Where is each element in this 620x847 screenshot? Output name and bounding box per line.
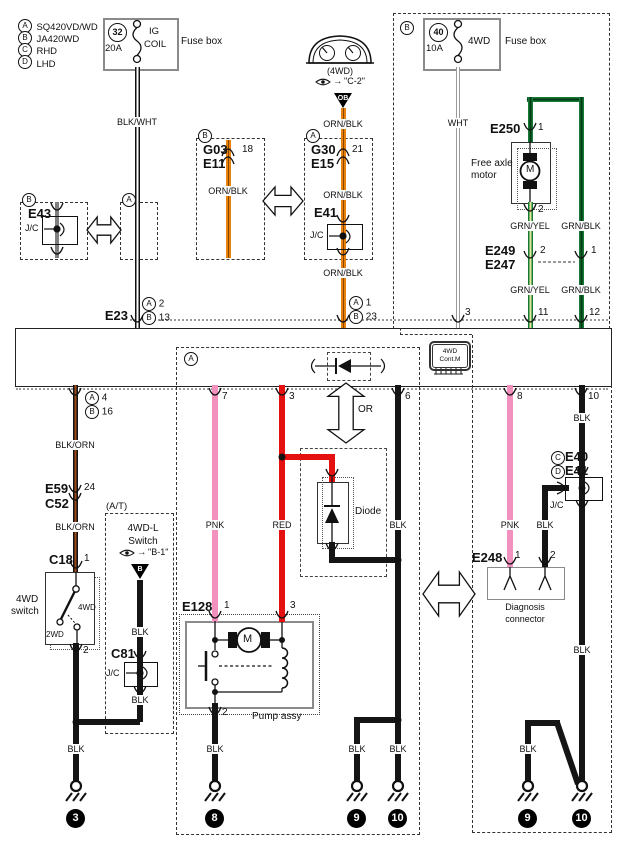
awdl-label-l2: Switch bbox=[127, 536, 158, 547]
wire-label: RED bbox=[271, 520, 292, 530]
awd-switch-pos-on: 4WD bbox=[78, 603, 96, 612]
wire-label: ORN/BLK bbox=[207, 186, 249, 196]
ground-icon-10a bbox=[388, 781, 408, 801]
connector-e249-l2: E247 bbox=[485, 257, 515, 272]
fuse-right-number: 40 bbox=[429, 23, 448, 42]
awd-switch-label-l1: 4WD bbox=[16, 594, 38, 605]
wire-label: BLK bbox=[518, 744, 537, 754]
ground-badge-10b: 10 bbox=[572, 809, 591, 828]
variant-arrow-e43 bbox=[87, 217, 121, 243]
connector-g03-l2: E11 bbox=[203, 156, 225, 171]
instrument-cluster-icon bbox=[306, 36, 374, 63]
mark-e43-b: B bbox=[22, 193, 36, 207]
grnblk-pin12: 12 bbox=[589, 307, 600, 318]
variant-arrow-g03-g30 bbox=[263, 187, 303, 215]
fuse-icon-right bbox=[454, 21, 462, 63]
e23-pin-b: B 13 bbox=[142, 311, 170, 325]
wire-label: BLK bbox=[347, 744, 366, 754]
e249-pin-r: 1 bbox=[591, 245, 597, 256]
wire-label: BLK bbox=[388, 744, 407, 754]
wire-label: ORN/BLK bbox=[322, 119, 364, 129]
wire-label: PNK bbox=[500, 520, 521, 530]
ground-badge-8: 8 bbox=[205, 809, 224, 828]
eye-icon-cluster bbox=[316, 79, 330, 85]
module-chip-l2: Cont.M bbox=[433, 356, 467, 364]
motor-label-l1: Free axle bbox=[471, 158, 513, 169]
wire-blk-diagonal bbox=[557, 723, 578, 785]
connector-e43: E43 bbox=[28, 206, 51, 221]
e248-pin2: 2 bbox=[550, 550, 556, 561]
eye-icon-at bbox=[120, 550, 134, 556]
fuse-right-box-label: Fuse box bbox=[505, 36, 546, 47]
jc-label-e40: J/C bbox=[550, 500, 564, 510]
fuse-left-box-label: Fuse box bbox=[181, 36, 222, 47]
wire-label: BLK bbox=[572, 413, 591, 423]
ground-badge-10a: 10 bbox=[388, 809, 407, 828]
module-pin-3: 3 bbox=[289, 391, 295, 402]
jc-e40-box bbox=[565, 477, 603, 501]
motor-m: M bbox=[526, 164, 534, 175]
connector-c52: C52 bbox=[45, 496, 69, 511]
awdl-goto-arrow: → bbox=[137, 547, 147, 558]
cluster-goto-ref: "C-2" bbox=[344, 76, 365, 86]
cluster-goto-arrow: → bbox=[333, 76, 343, 87]
wire-label: GRN/YEL bbox=[509, 285, 551, 295]
jc-c81-box bbox=[124, 662, 158, 687]
internal-diode-icon bbox=[312, 358, 385, 374]
wire-label: ORN/BLK bbox=[322, 268, 364, 278]
connector-g30-l1: G30 bbox=[311, 142, 336, 157]
mark-center-a: A bbox=[184, 352, 198, 366]
diagnosis-label-l1: Diagnosis bbox=[504, 602, 546, 612]
connector-e41: E41 bbox=[314, 205, 337, 220]
fuse-left-name2: COIL bbox=[144, 39, 166, 50]
orn-entry-pin-a: A 1 bbox=[349, 296, 371, 310]
wht-entry-pin: 3 bbox=[465, 307, 471, 318]
mark-g30-a: A bbox=[306, 129, 320, 143]
diode-label: Diode bbox=[355, 506, 381, 517]
fuse-left-number: 32 bbox=[108, 23, 127, 42]
module-pin-7: 7 bbox=[222, 391, 228, 402]
e59-pin: 24 bbox=[84, 482, 95, 493]
connector-g30-l2: E15 bbox=[311, 156, 334, 171]
connector-e248: E248 bbox=[472, 550, 502, 565]
jc-label-e43: J/C bbox=[25, 223, 39, 233]
module-pin-10: 10 bbox=[588, 391, 599, 402]
pump-m: M bbox=[243, 633, 252, 645]
ground-icon-8 bbox=[205, 781, 225, 801]
e250-pin1: 1 bbox=[538, 122, 544, 133]
connector-c18: C18 bbox=[49, 552, 73, 567]
module-chip: 4WD Cont.M bbox=[429, 341, 471, 371]
legend: A SQ420VD/WD B JA420WD C RHD D LHD bbox=[18, 17, 98, 66]
jc-label-c81: J/C bbox=[106, 668, 120, 678]
jc-e41-box bbox=[327, 224, 363, 250]
wire-label: GRN/BLK bbox=[560, 285, 602, 295]
connector-e250: E250 bbox=[490, 121, 520, 136]
awd-switch-label-l2: switch bbox=[11, 606, 39, 617]
wiring-diagram: A SQ420VD/WD B JA420WD C RHD D LHD 32 20… bbox=[0, 0, 620, 847]
cluster-label: (4WD) bbox=[326, 66, 354, 76]
legend-label-d: LHD bbox=[36, 59, 55, 70]
c18-pin1: 1 bbox=[84, 553, 90, 564]
ground-icon-9a bbox=[347, 781, 367, 801]
variant-arrow-diagnosis bbox=[423, 572, 475, 616]
mark-right-b: B bbox=[400, 21, 414, 35]
c18-pin2: 2 bbox=[83, 645, 89, 656]
wire-label: GRN/YEL bbox=[509, 221, 551, 231]
module-pin-6: 6 bbox=[405, 391, 411, 402]
awdl-label-l1: 4WD-L bbox=[126, 523, 159, 534]
diode-icon bbox=[324, 477, 340, 542]
connector-e59: E59 bbox=[45, 481, 68, 496]
motor-label-l2: motor bbox=[471, 170, 497, 181]
wire-label: BLK bbox=[535, 520, 554, 530]
connector-g03-pin: 18 bbox=[242, 144, 253, 155]
blkorn-exit-pin-a: A 4 bbox=[85, 391, 107, 405]
diagram-linework bbox=[0, 0, 620, 847]
wire-label: BLK bbox=[205, 744, 224, 754]
ground-badge-9a: 9 bbox=[347, 809, 366, 828]
module-chip-l1: 4WD bbox=[433, 348, 467, 356]
mark-alt-a: A bbox=[122, 193, 136, 207]
wire-label: WHT bbox=[447, 118, 470, 128]
wire-label: BLK/ORN bbox=[54, 440, 96, 450]
wire-label: BLK bbox=[130, 627, 149, 637]
at-label: (A/T) bbox=[106, 501, 127, 512]
connector-g30-pin: 21 bbox=[352, 144, 363, 155]
blkorn-exit-pin-b: B 16 bbox=[85, 405, 113, 419]
fuse-right-amp: 10A bbox=[426, 43, 443, 54]
fuse-left-name1: IG bbox=[149, 26, 159, 37]
ground-icons bbox=[66, 781, 592, 801]
wire-label: BLK bbox=[572, 645, 591, 655]
diagnosis-terminals bbox=[504, 567, 551, 590]
or-label: OR bbox=[358, 404, 373, 415]
connector-e249-l1: E249 bbox=[485, 243, 515, 258]
awd-switch-pos-off: 2WD bbox=[46, 630, 64, 639]
mark-g03-b: B bbox=[198, 129, 212, 143]
wire-label: GRN/BLK bbox=[560, 221, 602, 231]
ground-badge-3: 3 bbox=[66, 809, 85, 828]
wire-label: BLK/WHT bbox=[116, 117, 158, 127]
wire-label: BLK bbox=[66, 744, 85, 754]
e41-row: DE41 bbox=[551, 463, 588, 479]
diagnosis-label-l2: connector bbox=[504, 614, 546, 624]
e248-pin1: 1 bbox=[515, 550, 521, 561]
fuse-icon-left bbox=[133, 21, 141, 63]
connector-g03-l1: G03 bbox=[203, 142, 228, 157]
e128-pin3: 3 bbox=[290, 600, 296, 611]
awdl-goto-ref: "B-1" bbox=[148, 547, 168, 557]
wire-label: BLK/ORN bbox=[54, 522, 96, 532]
e249-pin-l: 2 bbox=[540, 245, 546, 256]
e23-pin-a: A 2 bbox=[142, 297, 164, 311]
ground-icon-3 bbox=[66, 781, 86, 801]
pump-label: Pump assy bbox=[252, 711, 301, 722]
e128-pin2: 2 bbox=[222, 707, 228, 718]
module-pin-8: 8 bbox=[517, 391, 523, 402]
connector-e23: E23 bbox=[96, 308, 128, 323]
e250-pin2: 2 bbox=[538, 204, 544, 215]
e128-pin1: 1 bbox=[224, 600, 230, 611]
grnyel-pin11: 11 bbox=[538, 307, 548, 318]
fuse-right-name: 4WD bbox=[468, 36, 490, 47]
ground-icon-9b bbox=[518, 781, 538, 801]
jc-label-e41: J/C bbox=[310, 230, 324, 240]
connector-e128: E128 bbox=[182, 599, 212, 614]
wire-label: PNK bbox=[205, 520, 226, 530]
ground-badge-9b: 9 bbox=[518, 809, 537, 828]
wire-label: BLK bbox=[388, 520, 407, 530]
connector-c81: C81 bbox=[111, 646, 135, 661]
wire-label: ORN/BLK bbox=[322, 190, 364, 200]
wire-label: BLK bbox=[130, 695, 149, 705]
orn-entry-pin-b: B 23 bbox=[349, 310, 377, 324]
fuse-left-amp: 20A bbox=[105, 43, 122, 54]
